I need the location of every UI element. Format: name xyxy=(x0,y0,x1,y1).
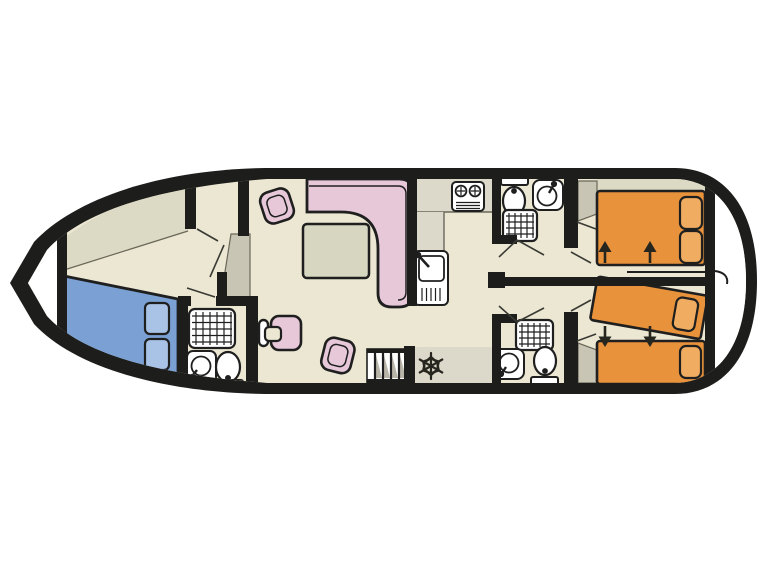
wall xyxy=(705,172,715,390)
toilet-flush xyxy=(543,369,548,374)
bow-bed-pillow xyxy=(145,339,169,370)
bed-pillow xyxy=(680,346,701,378)
bow-bed-pillow xyxy=(145,303,169,334)
bed-pillow xyxy=(680,231,702,263)
bed-pillow xyxy=(680,197,702,229)
aft-bottom-wardrobe xyxy=(578,343,597,383)
armchair xyxy=(319,336,356,375)
stairs-bottom-rail xyxy=(367,379,408,383)
wall xyxy=(238,176,249,236)
helm-seat xyxy=(265,316,301,350)
toilet-flush xyxy=(512,189,517,194)
wall xyxy=(564,312,578,390)
boat-floor-plan xyxy=(0,0,768,576)
wall xyxy=(503,277,706,286)
wall xyxy=(564,172,578,248)
wall xyxy=(246,296,258,388)
aft-top-wardrobe xyxy=(578,181,597,221)
wall xyxy=(178,296,191,306)
bed-pillow xyxy=(672,297,699,332)
wall xyxy=(492,314,501,390)
saloon-table xyxy=(303,224,369,278)
stove xyxy=(452,182,484,211)
stairs xyxy=(367,349,408,383)
wall xyxy=(178,296,188,384)
wall xyxy=(488,272,505,288)
fridge-freezer xyxy=(415,347,492,386)
wall xyxy=(407,172,417,306)
tap-head xyxy=(551,181,556,186)
armchair-seat xyxy=(319,336,356,375)
helm-seat-notch xyxy=(265,327,281,341)
wall xyxy=(185,183,196,229)
wall xyxy=(492,172,501,244)
wall xyxy=(217,272,227,306)
stairs-top-rail xyxy=(367,349,408,353)
galley-sink xyxy=(414,251,448,305)
boat-floor-plan-page xyxy=(0,0,768,576)
